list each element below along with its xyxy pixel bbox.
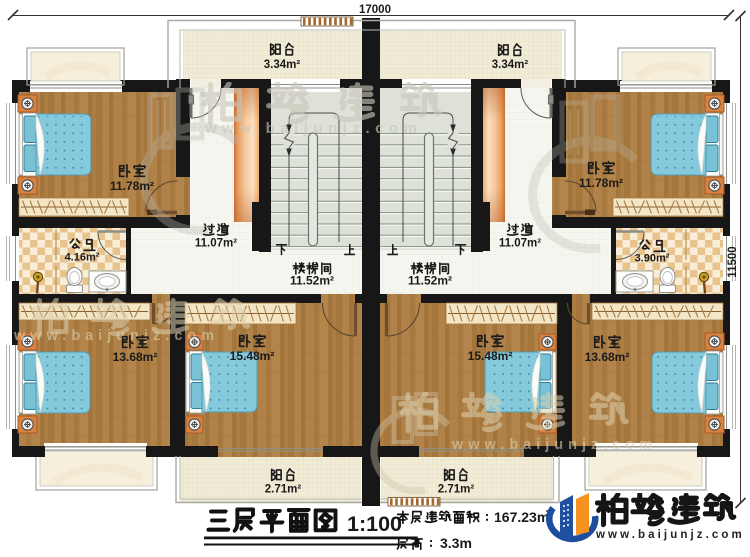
svg-text:17000: 17000 [359,4,391,16]
svg-text:2.71m²: 2.71m² [265,484,302,496]
svg-text:15.48m²: 15.48m² [468,349,513,363]
svg-text:11.78m²: 11.78m² [579,176,623,190]
svg-text:13.68m²: 13.68m² [113,350,158,364]
svg-text:11.52m²: 11.52m² [408,274,452,288]
svg-text:13.68m²: 13.68m² [585,350,630,364]
svg-text:www.baijunjz.com: www.baijunjz.com [204,120,422,137]
svg-text:11.78m²: 11.78m² [110,179,154,193]
svg-text:3.34m²: 3.34m² [264,59,301,71]
svg-text:15.48m²: 15.48m² [230,349,275,363]
svg-text:3.3m: 3.3m [440,535,472,551]
svg-text:167.23m: 167.23m [494,509,549,525]
svg-text:www.baijunjz.com: www.baijunjz.com [451,437,657,453]
svg-text:11.52m²: 11.52m² [290,274,334,288]
svg-text:www.baijunjz.com: www.baijunjz.com [13,328,219,344]
svg-text:4.16m²: 4.16m² [65,252,100,264]
svg-text:2.71m²: 2.71m² [438,484,475,496]
svg-text:11500: 11500 [727,246,739,277]
svg-text:3.90m²: 3.90m² [635,253,670,265]
svg-text:www.baijunjz.com: www.baijunjz.com [595,529,745,541]
svg-text:11.07m²: 11.07m² [195,238,237,250]
svg-text:3.34m²: 3.34m² [492,59,529,71]
svg-text:1:100: 1:100 [347,512,402,536]
svg-text:11.07m²: 11.07m² [499,238,541,250]
